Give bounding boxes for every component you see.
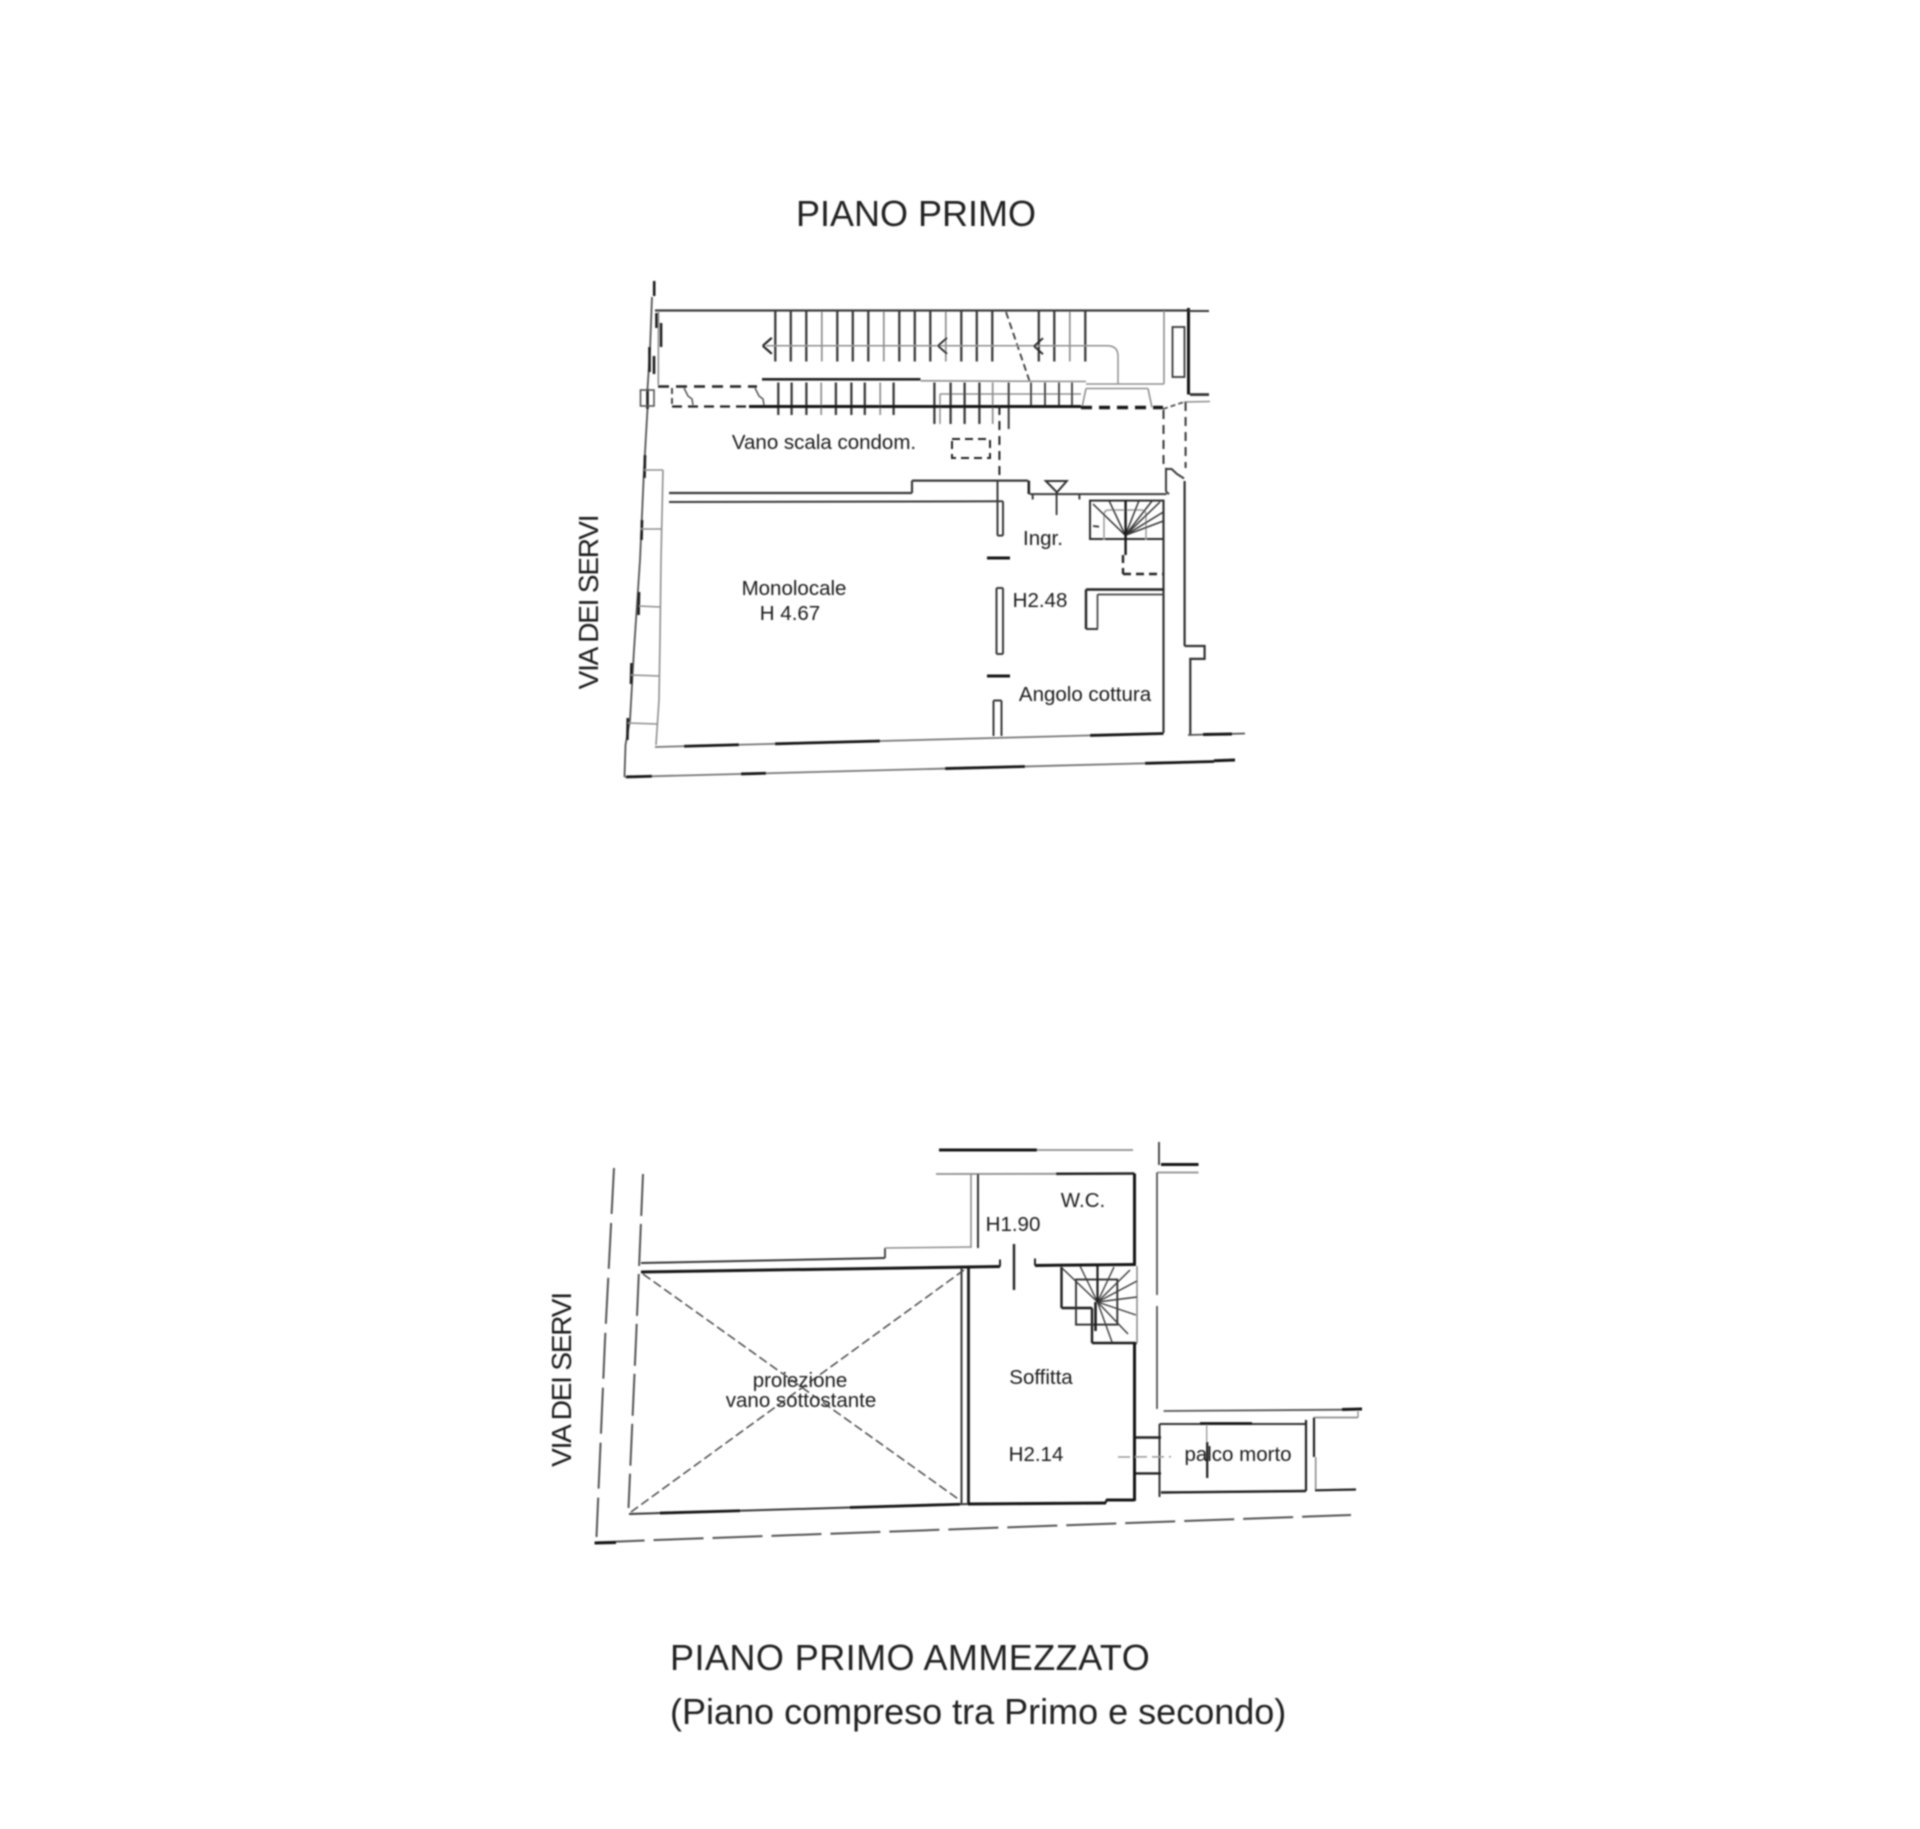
svg-text:(Piano compreso tra Primo e se: (Piano compreso tra Primo e secondo) [670, 1691, 1286, 1732]
svg-text:Monolocale: Monolocale [742, 577, 847, 600]
svg-text:H 4.67: H 4.67 [760, 602, 820, 625]
svg-text:VIA DEI SERVI: VIA DEI SERVI [573, 516, 604, 690]
svg-text:H2.48: H2.48 [1013, 589, 1068, 612]
svg-text:W.C.: W.C. [1061, 1189, 1105, 1212]
svg-text:PIANO PRIMO: PIANO PRIMO [796, 193, 1036, 234]
svg-text:Ingr.: Ingr. [1023, 527, 1063, 550]
svg-text:palco morto: palco morto [1184, 1443, 1291, 1466]
svg-text:VIA DEI SERVI: VIA DEI SERVI [546, 1293, 577, 1467]
svg-text:Soffitta: Soffitta [1009, 1366, 1073, 1389]
svg-text:Vano scala condom.: Vano scala condom. [732, 431, 916, 454]
svg-text:H2.14: H2.14 [1009, 1443, 1064, 1466]
svg-text:H1.90: H1.90 [986, 1213, 1041, 1236]
svg-text:Angolo cottura: Angolo cottura [1019, 683, 1152, 706]
svg-text:PIANO PRIMO AMMEZZATO: PIANO PRIMO AMMEZZATO [670, 1637, 1150, 1678]
svg-text:vano sottostante: vano sottostante [726, 1389, 876, 1412]
